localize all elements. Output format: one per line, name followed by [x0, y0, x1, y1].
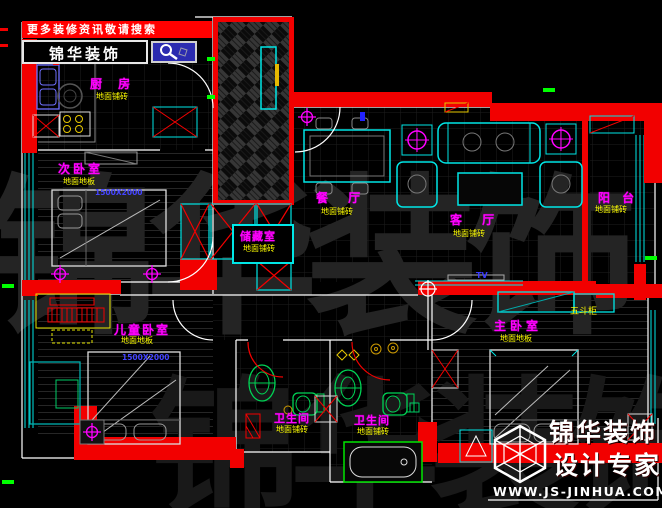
balcony-floor-label: 地面铺砖	[595, 206, 627, 214]
jinhua-logo-icon	[491, 423, 549, 485]
master-bedroom-floor-label: 地面地板	[500, 335, 532, 343]
elevator-shaft	[216, 20, 292, 203]
living-room-floor-label: 地面铺砖	[453, 230, 485, 238]
second-bedroom-floor-label: 地面地板	[63, 178, 95, 186]
dining-room-floor-label: 地面铺砖	[321, 208, 353, 216]
bathroom-1-label: 卫生间	[274, 413, 310, 424]
floorplan-screenshot: 锦华装饰 锦华装饰	[0, 0, 662, 508]
bathroom-2-floor-label: 地面铺砖	[357, 428, 389, 436]
logo-brand-text: 锦华装饰	[549, 420, 657, 445]
children-bedroom-label: 儿童卧室	[114, 324, 170, 336]
kitchen-floor-label: 地面铺砖	[96, 93, 128, 101]
search-button[interactable]	[151, 41, 197, 63]
kitchen-label: 厨 房	[90, 78, 136, 90]
storage-label: 储藏室	[240, 231, 276, 242]
website-link[interactable]: WWW.JS-JINHUA.COM	[493, 484, 662, 499]
company-logo-block: 锦华装饰 设计专家 WWW.JS-JINHUA.COM	[487, 417, 662, 508]
second-bedroom-label: 次卧室	[58, 163, 103, 175]
dining-room-label: 餐 厅	[316, 192, 368, 204]
brand-box: 锦华装饰	[22, 40, 148, 64]
children-bedroom-floor-label: 地面地板	[121, 337, 153, 345]
master-cabinet-label: 五斗柜	[570, 308, 597, 317]
children-bedroom-bed-size: 1500X2000	[122, 354, 170, 362]
master-bedroom-label: 主卧室	[494, 320, 542, 332]
balcony-label: 阳 台	[598, 192, 638, 204]
second-bedroom-bed-size: 1500X2000	[95, 189, 143, 197]
magnifier-icon	[156, 44, 192, 60]
living-room-label: 客 厅	[450, 214, 502, 226]
bathroom-1-floor-label: 地面铺砖	[276, 426, 308, 434]
tv-label: TV	[476, 272, 488, 280]
logo-tagline-text: 设计专家	[553, 453, 661, 478]
bathroom-2-label: 卫生间	[354, 415, 390, 426]
storage-floor-label: 地面铺砖	[243, 245, 275, 253]
promo-banner: 更多装修资讯敬请搜索	[22, 21, 212, 38]
